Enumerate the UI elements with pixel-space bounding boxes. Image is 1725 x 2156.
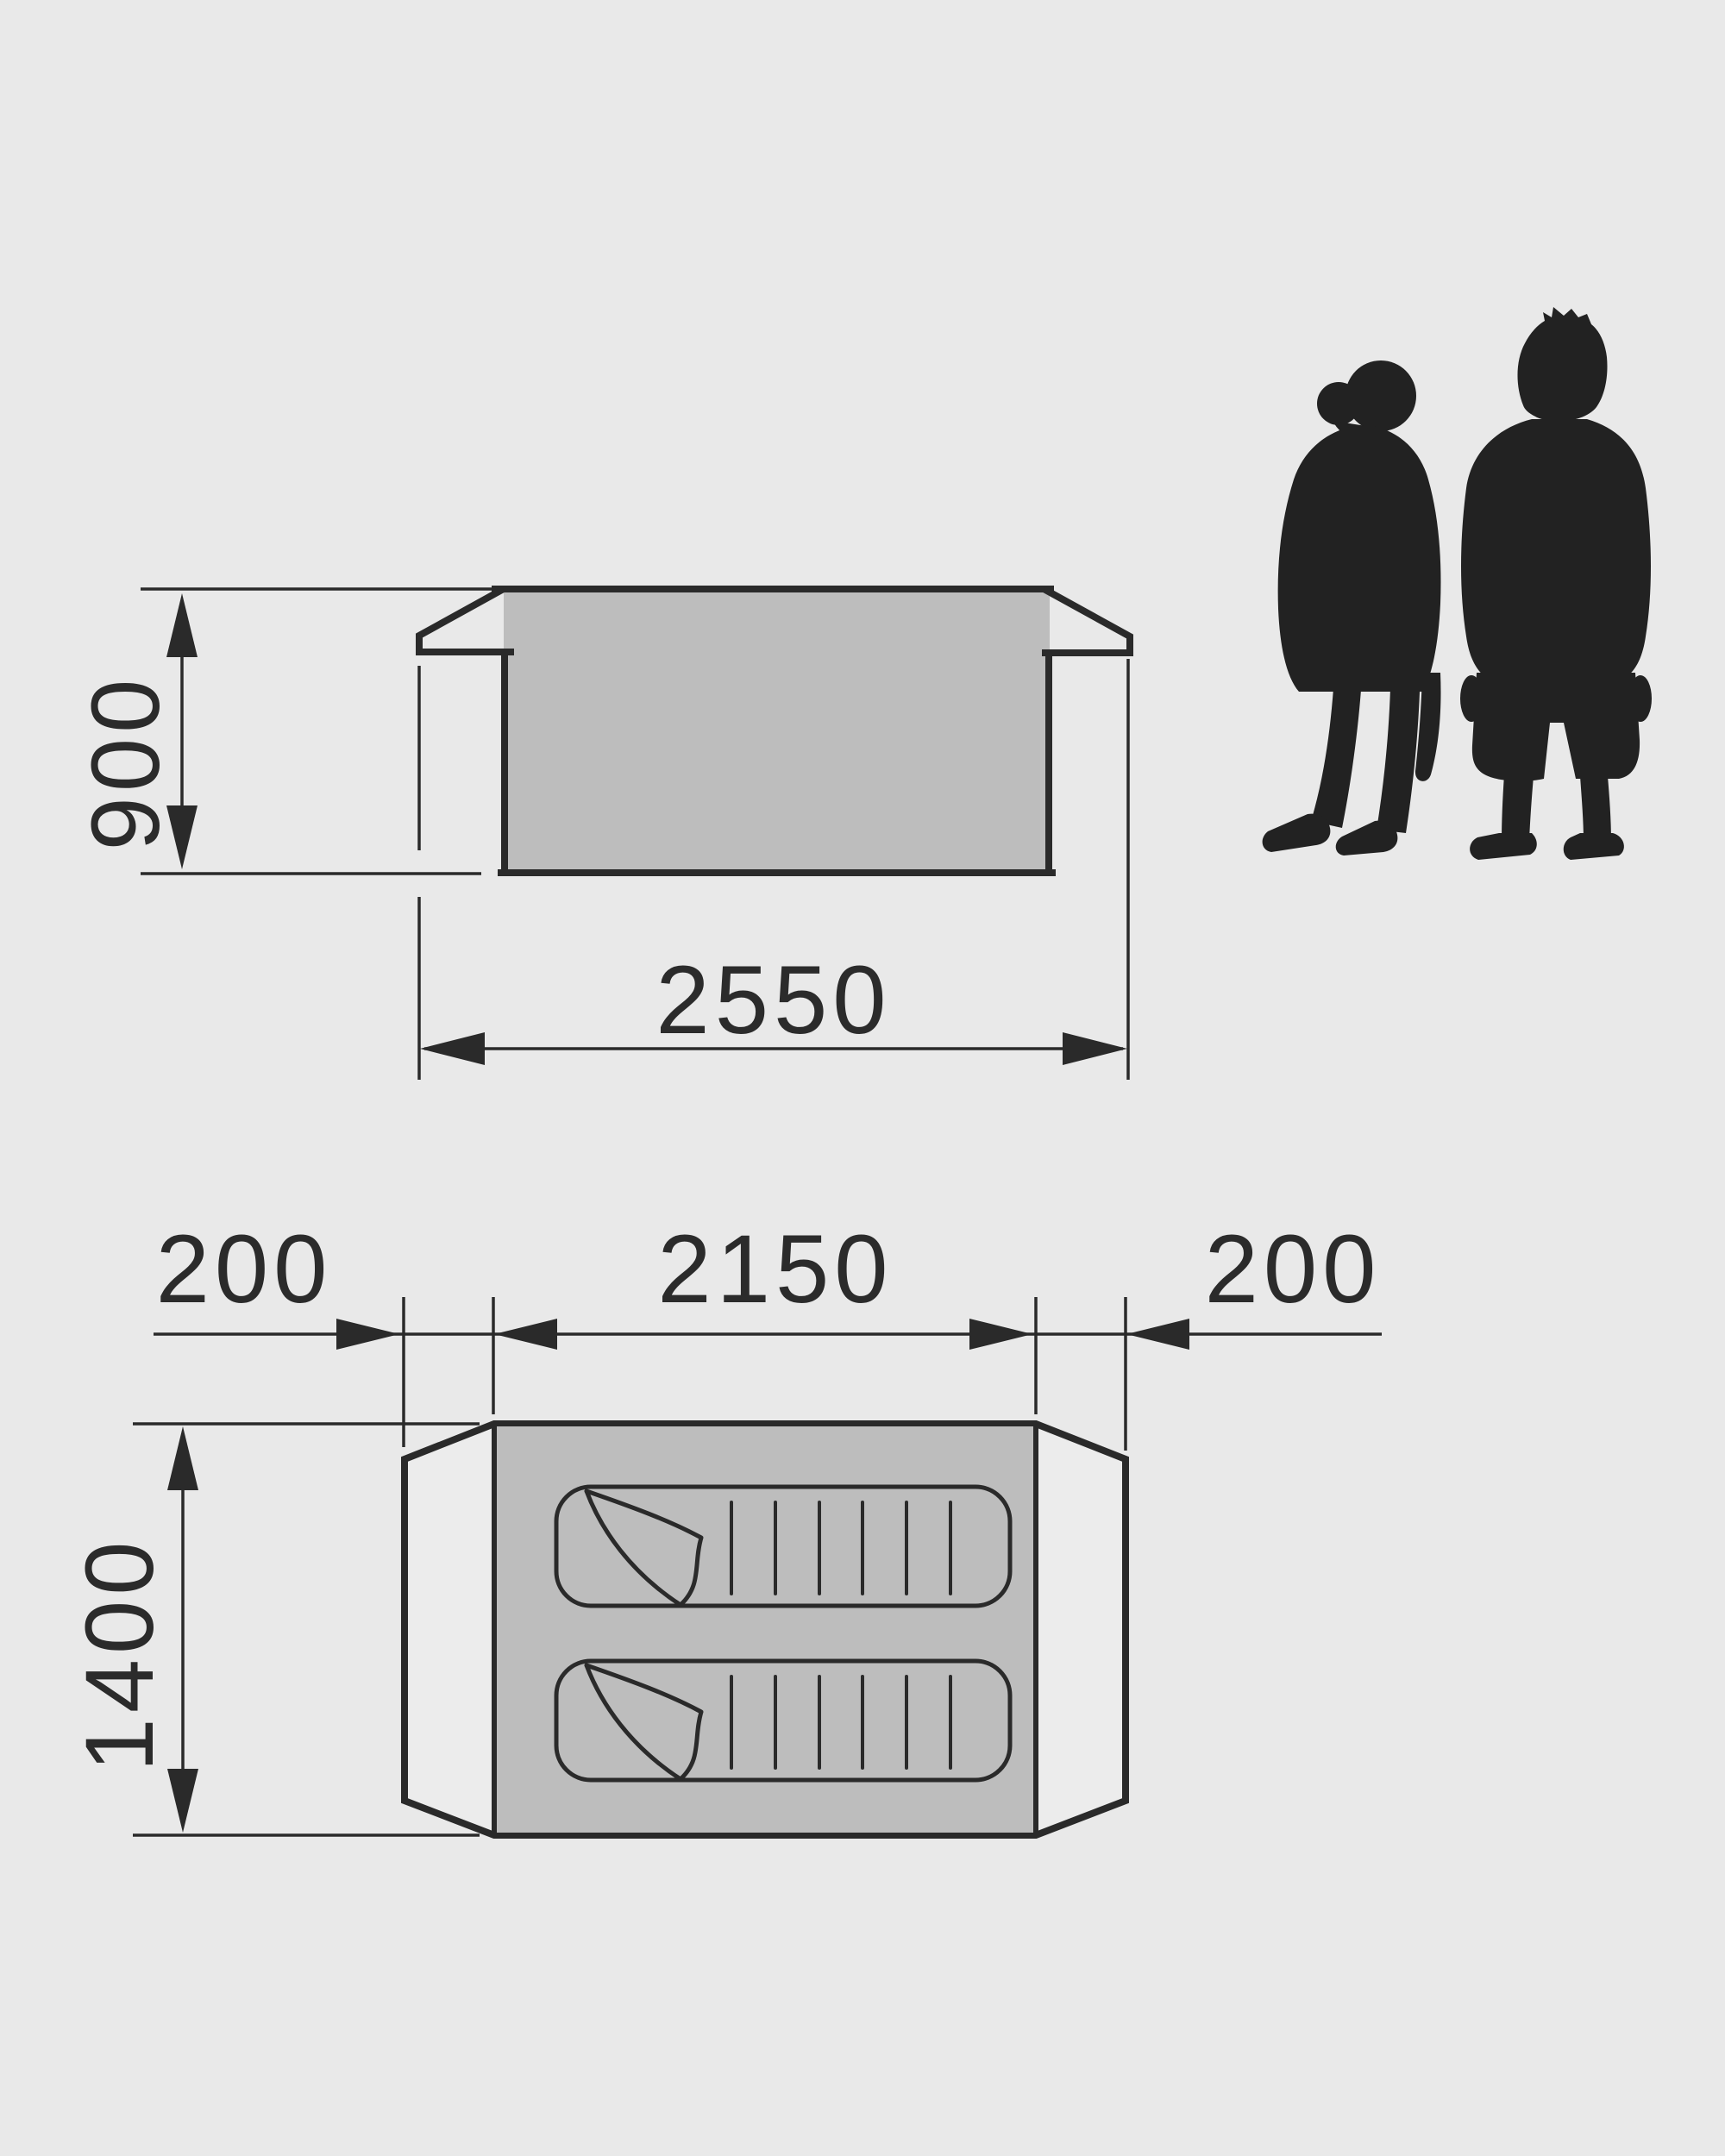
diagram-linework [0,0,1725,2156]
dimension-label-plan-depth: 1400 [72,1536,168,1771]
person-silhouette-woman [1263,360,1441,856]
side-elevation-view [141,589,1130,1080]
dimension-label-inner-width: 2150 [657,1221,893,1318]
tent-left-flap [419,591,511,652]
tent-side-body [504,590,1050,873]
floor-plan-view [133,1297,1382,1835]
dimension-label-side-width: 2550 [655,952,891,1049]
dimension-label-right-vestibule: 200 [1205,1221,1382,1318]
dimension-label-side-height: 900 [78,674,174,851]
scale-figures [1263,307,1652,860]
dimension-label-left-vestibule: 200 [156,1221,333,1318]
height-dimension-900 [141,589,497,874]
tent-dimension-diagram: 900 2550 200 2150 200 1400 [0,0,1725,2156]
tent-right-flap [1045,591,1130,653]
person-silhouette-man [1460,307,1652,860]
